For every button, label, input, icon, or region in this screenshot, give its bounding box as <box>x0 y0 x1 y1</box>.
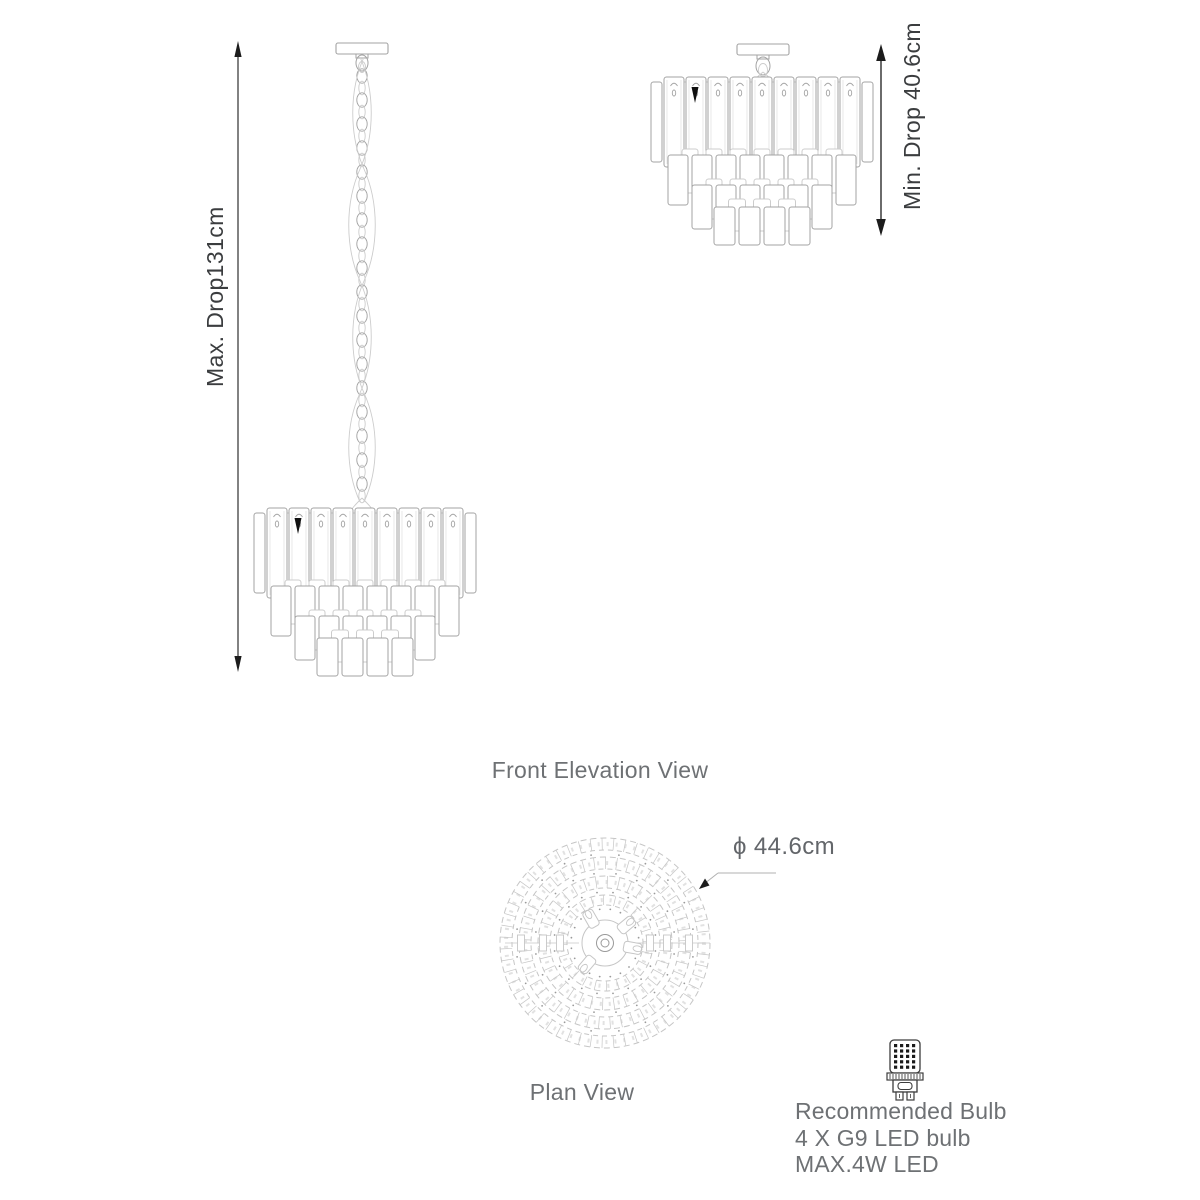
front-elevation-caption: Front Elevation View <box>490 757 710 784</box>
bulb-recommendation: Recommended Bulb 4 X G9 LED bulb MAX.4W … <box>795 1098 1007 1178</box>
min-drop-dimension-line <box>876 44 886 236</box>
g9-bulb-icon <box>887 1040 923 1100</box>
max-drop-dimension-line <box>234 41 241 672</box>
diameter-label: ϕ 44.6cm <box>733 833 835 861</box>
diameter-leader-line <box>699 873 776 889</box>
plan-view-drawing <box>500 838 710 1048</box>
bulb-title: Recommended Bulb <box>795 1098 1007 1125</box>
max-drop-label: Max. Drop131cm <box>202 208 229 386</box>
dimension-spec-sheet: Max. Drop131cm Min. Drop 40.6cm Front El… <box>0 0 1200 1200</box>
plan-view-caption: Plan View <box>482 1079 682 1106</box>
bulb-spec: 4 X G9 LED bulb <box>795 1125 1007 1152</box>
spec-drawing <box>0 0 1200 1200</box>
bulb-max-wattage: MAX.4W LED <box>795 1151 1007 1178</box>
flush-chandelier-drawing <box>651 44 873 245</box>
pendant-chandelier-drawing <box>254 43 476 676</box>
min-drop-label: Min. Drop 40.6cm <box>899 24 926 208</box>
